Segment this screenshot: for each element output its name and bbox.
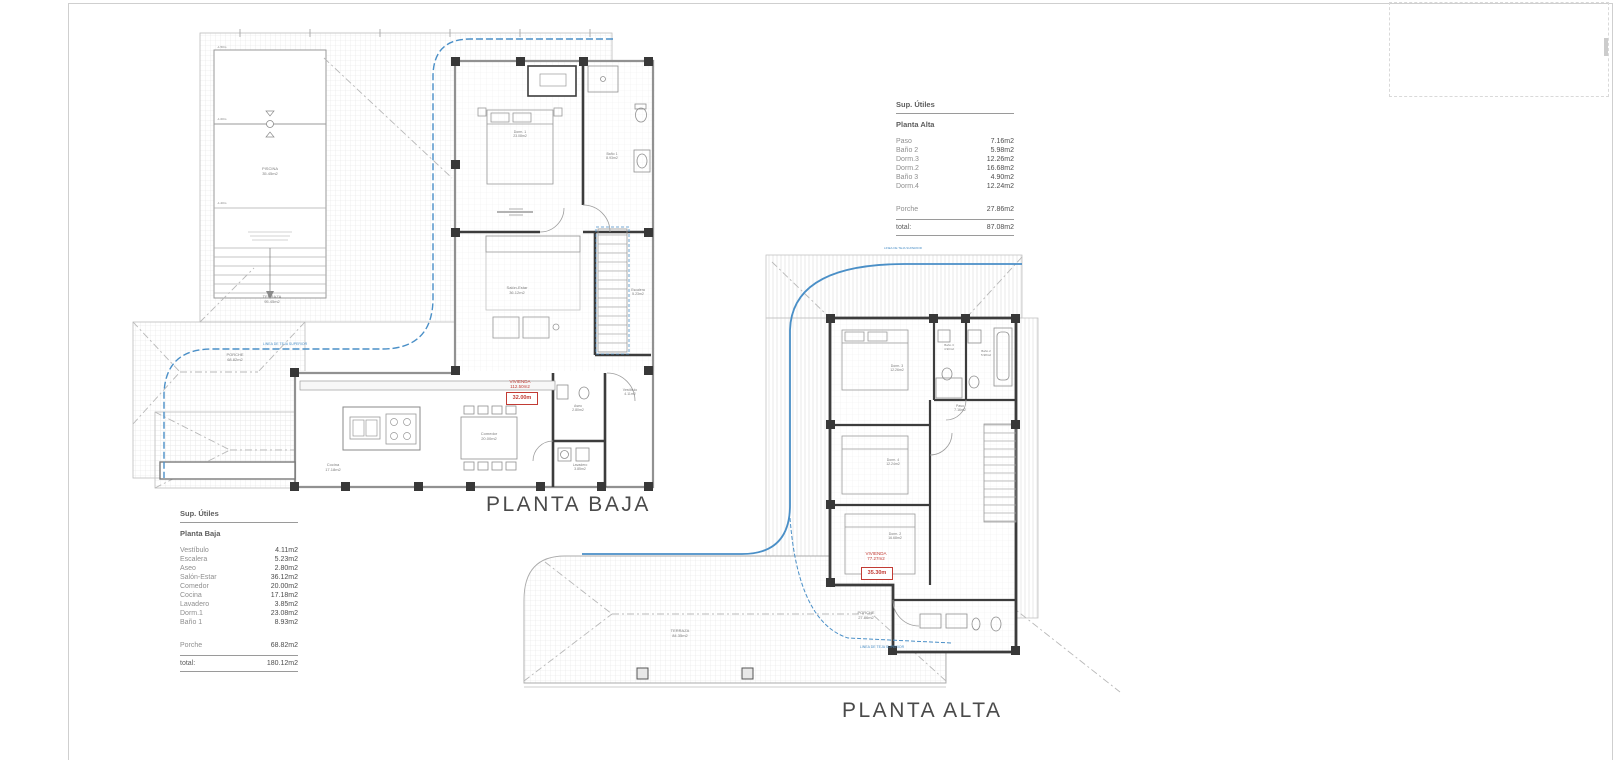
label-cocina: Cocina17.18m2 <box>325 462 341 472</box>
planta-baja-drawing <box>133 29 655 491</box>
label-dorm3: Dorm. 312.26m2 <box>890 364 904 372</box>
drawing-sheet: PISCINA35.45m2 -1.50m -1.00m -1.20m TERR… <box>0 0 1620 760</box>
label-terraza-alta: TERRAZA84.35m2 <box>671 628 690 638</box>
label-level-low: -1.20m <box>217 202 226 206</box>
label-bano3: Baño 34.90m2 <box>944 344 954 351</box>
table-row: Lavadero3.85m2 <box>180 600 298 609</box>
label-paso: Paso7.16m2 <box>954 404 966 412</box>
table-header: Sup. Útiles <box>896 100 1014 114</box>
stairs-baja <box>596 227 629 354</box>
label-terraza-baja: TERRAZA95.45m2 <box>263 294 282 304</box>
table-row: Dorm.312.26m2 <box>896 155 1014 164</box>
label-dorm1: Dorm. 123.08m2 <box>513 130 527 138</box>
table-row: Baño 25.98m2 <box>896 146 1014 155</box>
label-linea-teja-alta-top: LINEA DE TEJA SUPERIOR <box>884 247 922 251</box>
table-row: Escalera5.23m2 <box>180 555 298 564</box>
table-row: Salón-Estar36.12m2 <box>180 573 298 582</box>
table-row: Dorm.412.24m2 <box>896 182 1014 191</box>
label-lavadero: Lavadero3.85m2 <box>573 463 588 471</box>
table-sup-utiles-baja: Sup. Útiles Planta Baja Vestíbulo4.11m2 … <box>180 509 298 672</box>
label-vestibulo: Vestíbulo4.11m2 <box>623 388 637 396</box>
table-row: Cocina17.18m2 <box>180 591 298 600</box>
label-level-top: -1.50m <box>217 46 226 50</box>
table-row-porche: Porche27.86m2 <box>896 205 1014 214</box>
label-bano2: Baño 25.98m2 <box>981 350 991 357</box>
label-porche-baja: PORCHE68.82m2 <box>226 352 243 362</box>
label-linea-teja-alta: LINEA DE TEJA SUPERIOR <box>860 645 904 649</box>
label-comedor: Comedor20.00m2 <box>481 431 497 441</box>
label-escalera: Escalera5.23m2 <box>631 288 645 296</box>
title-planta-baja: PLANTA BAJA <box>486 493 651 517</box>
vivienda-box-alta: 35.30m <box>861 567 893 580</box>
table-total-row: total:87.08m2 <box>896 219 1014 236</box>
label-vivienda-alta: VIVIENDA77.27m2 <box>865 551 886 561</box>
table-floor-name: Planta Baja <box>180 529 298 538</box>
table-row: Dorm.123.08m2 <box>180 609 298 618</box>
porch-bench <box>160 462 295 479</box>
vivienda-box-baja: 32.00m <box>506 392 538 405</box>
table-row: Vestíbulo4.11m2 <box>180 546 298 555</box>
table-row: Paso7.16m2 <box>896 137 1014 146</box>
table-total-row: total:180.12m2 <box>180 655 298 672</box>
table-row-porche: Porche68.82m2 <box>180 641 298 650</box>
label-dorm2: Dorm. 216.68m2 <box>888 532 902 540</box>
label-vivienda-baja: VIVIENDA112.50m2 <box>509 379 530 389</box>
table-row: Dorm.216.68m2 <box>896 164 1014 173</box>
table-floor-name: Planta Alta <box>896 120 1014 129</box>
label-dorm4: Dorm. 412.24m2 <box>886 458 900 466</box>
label-linea-teja-baja: LINEA DE TEJA SUPERIOR <box>263 342 307 346</box>
table-row: Baño 18.93m2 <box>180 618 298 627</box>
label-porche-alta: PORCHE27.86m2 <box>857 610 874 620</box>
stairs-alta <box>984 424 1016 522</box>
table-sup-utiles-alta: Sup. Útiles Planta Alta Paso7.16m2 Baño … <box>896 100 1014 236</box>
table-header: Sup. Útiles <box>180 509 298 523</box>
label-level-mid: -1.00m <box>217 118 226 122</box>
table-row: Baño 34.90m2 <box>896 173 1014 182</box>
title-planta-alta: PLANTA ALTA <box>842 699 1003 723</box>
table-row: Comedor20.00m2 <box>180 582 298 591</box>
label-piscina: PISCINA35.45m2 <box>262 166 278 176</box>
label-bano1: Baño 18.93m2 <box>606 152 618 160</box>
table-row: Aseo2.80m2 <box>180 564 298 573</box>
label-aseo: Aseo2.80m2 <box>572 404 584 412</box>
label-salon: Salón-Estar36.12m2 <box>507 285 528 295</box>
